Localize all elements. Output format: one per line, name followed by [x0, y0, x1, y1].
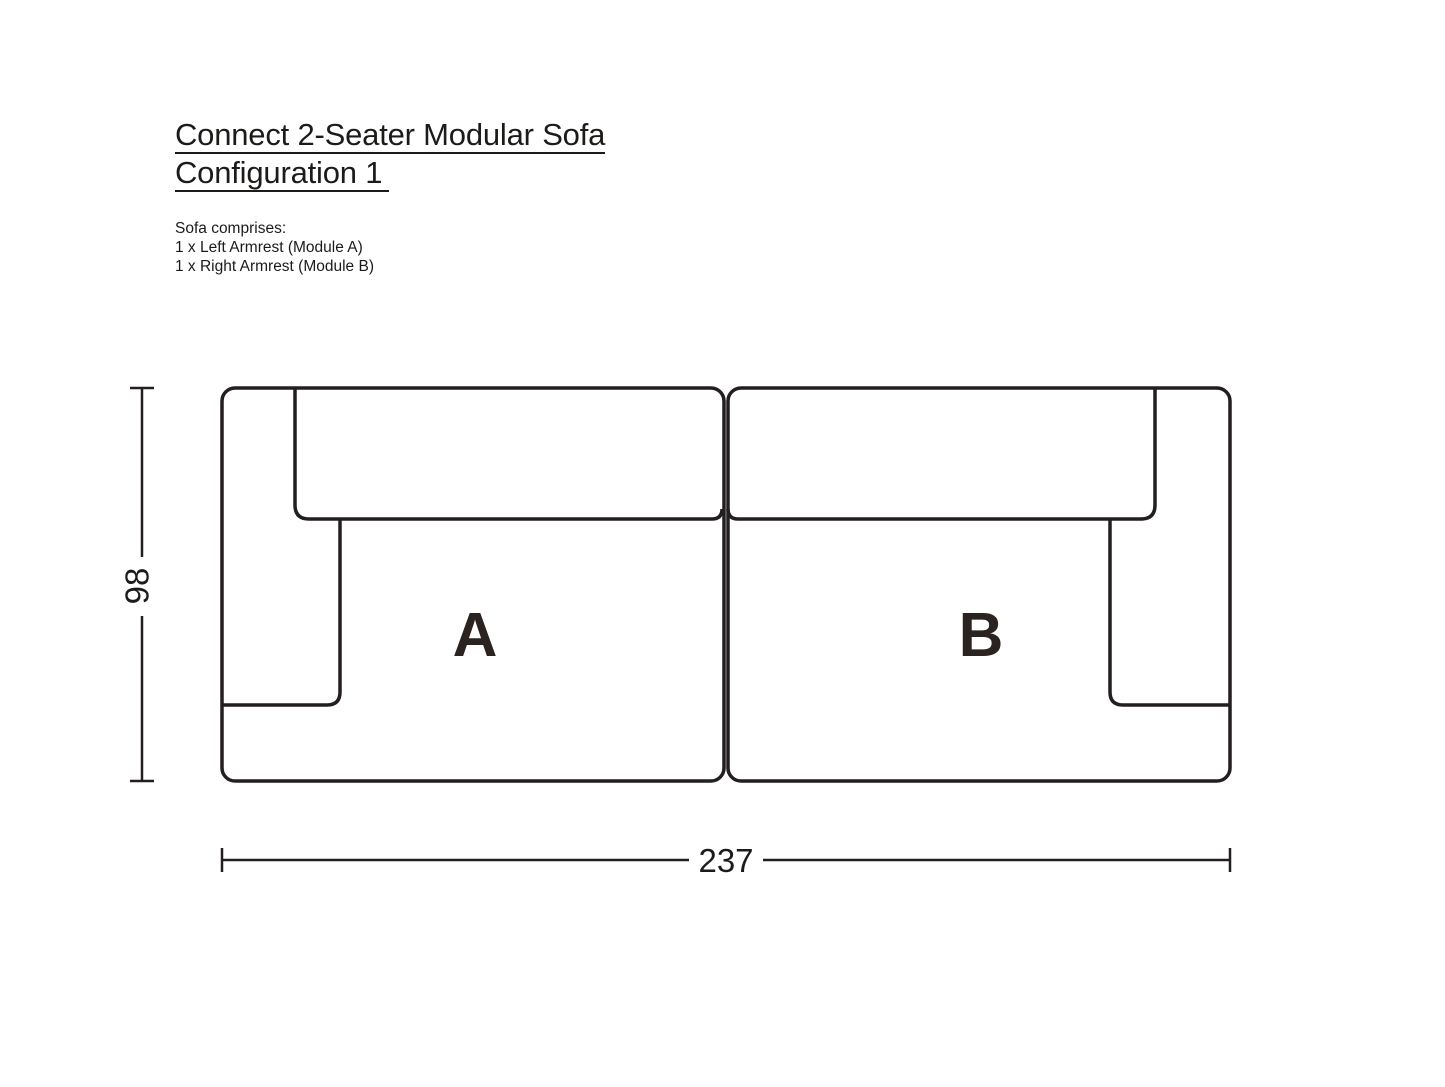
module-a-armrest-line: [222, 520, 340, 705]
module-b-backrest-cushion-line: [728, 388, 1155, 519]
sofa-diagram: A B 98 237: [0, 0, 1445, 1087]
module-a-label: A: [453, 601, 498, 670]
module-b-armrest-line: [1110, 520, 1230, 705]
module-a-backrest-cushion-line: [295, 388, 722, 519]
module-a-outline: [222, 388, 724, 781]
width-dimension-label: 237: [698, 842, 753, 879]
module-b-label: B: [959, 601, 1004, 670]
depth-dimension-label: 98: [119, 568, 156, 605]
dimension-labels-group: 98 237: [119, 568, 754, 879]
sofa-outline-group: [222, 388, 1230, 781]
spec-sheet-page: Connect 2-Seater Modular Sofa Configurat…: [0, 0, 1445, 1087]
